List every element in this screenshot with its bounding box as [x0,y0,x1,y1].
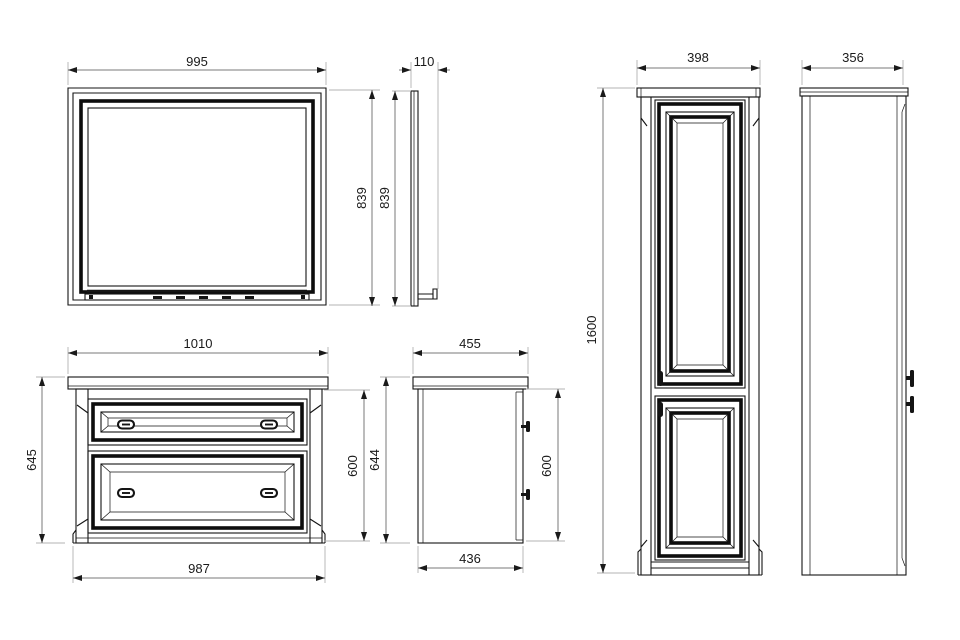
vanity-drawer-bottom [88,451,307,533]
door-panel-mitres [666,112,734,376]
mirror-glass-edge [88,108,306,286]
dimension-vanity-width-bottom: 987 [73,546,325,583]
door-panel-moulding [671,413,729,543]
handle-cap [910,370,914,387]
technical-drawing-canvas: 995 110 839 839 [0,0,960,640]
door-handle [658,371,663,386]
cabinet-door-upper [655,100,745,388]
vanity-side-view: 455 644 600 436 [367,336,565,573]
vanity-countertop [68,377,328,389]
dim-label-vanity-side-body-height: 600 [539,455,554,477]
mirror-shelf [85,294,309,300]
furniture-dimension-drawing: 995 110 839 839 [0,0,960,640]
drawer-handle-profile [521,421,530,432]
dimension-cabinet-depth: 356 [802,50,903,85]
dim-label-mirror-height-inner: 839 [377,187,392,209]
dim-label-vanity-side-height: 644 [367,449,382,471]
drawer-handle [261,421,277,429]
handle-cap [526,489,530,500]
vanity-side-panel-lines [423,389,523,543]
cabinet-bottom-rails [651,562,749,568]
door-slab [655,396,745,560]
dimension-vanity-side-height: 644 [367,377,410,543]
extension-lines [36,377,65,543]
cabinet-side-panel-lines [810,96,905,575]
dimension-mirror-width: 995 [68,54,326,85]
cabinet-cornice-ends [641,88,756,97]
handle-stem [906,376,910,380]
dim-label-mirror-height-outer: 839 [354,187,369,209]
dim-label-vanity-height: 645 [24,449,39,471]
dim-label-cabinet-height: 1600 [584,316,599,345]
dim-label-mirror-width: 995 [186,54,208,69]
dimension-cabinet-width: 398 [637,50,760,85]
dimension-vanity-side-body-height: 600 [526,389,565,541]
extension-lines [380,377,410,543]
drawer-handle [118,421,134,429]
handle-cap [910,396,914,413]
vanity-side-body [418,389,523,543]
mirror-shelf-brackets [89,295,305,299]
dimension-vanity-height: 645 [24,377,65,543]
cabinet-cornice [637,88,760,97]
tall-cabinet-side-view: 356 [800,50,914,575]
mirror-side-shelf [418,289,437,299]
dim-label-vanity-depth-top: 455 [459,336,481,351]
door-handle-profile [906,396,914,413]
mirror-frame-moulding [81,101,313,292]
dimension-mirror-height-outer: 839 [354,90,372,306]
dimension-vanity-depth-bottom: 436 [418,546,523,573]
door-slab [655,100,745,388]
cabinet-door-lower [655,396,745,560]
drawer-handle-profile [521,489,530,500]
drawer-handle [118,489,134,497]
vanity-side-countertop [413,377,528,389]
dim-label-cabinet-width: 398 [687,50,709,65]
dimension-mirror-depth: 110 [399,54,450,289]
handle-cap [526,421,530,432]
dim-label-vanity-depth-bottom: 436 [459,551,481,566]
dim-label-cabinet-depth: 356 [842,50,864,65]
dimension-vanity-body-height: 600 [324,390,370,541]
tall-cabinet-front-view: 398 1600 [584,50,762,575]
extension-lines [68,347,328,374]
dimension-vanity-width-top: 1010 [68,336,328,374]
dim-label-vanity-width-bottom: 987 [188,561,210,576]
handle-stem [906,402,910,406]
dim-label-vanity-body-height: 600 [345,455,360,477]
cabinet-side-body [802,96,906,575]
vanity-front-view: 1010 645 600 987 [24,336,370,583]
handle-stem [521,493,526,496]
vanity-feet [73,530,325,543]
handle-stem [521,425,526,428]
dim-label-mirror-depth: 110 [414,54,435,69]
door-panel-edge [666,408,734,548]
dimension-cabinet-height: 1600 [584,88,635,573]
extension-lines [411,62,438,289]
mirror-front-view: 995 [68,54,380,305]
dimension-vanity-depth-top: 455 [413,336,528,374]
mirror-side-view: 110 839 839 [354,54,450,306]
dimension-mirror-height-inner: 839 [377,91,411,306]
mirror-frame-outer [68,88,326,305]
drawer-handle [261,489,277,497]
dim-label-vanity-width-top: 1010 [184,336,213,351]
extension-lines [413,347,528,374]
vanity-drawer-top [88,399,307,445]
mirror-side-panel [411,91,418,306]
door-panel-moulding [671,117,729,371]
door-panel-edge [666,112,734,376]
door-handle [658,402,663,417]
door-handle-profile [906,370,914,387]
door-panel-mitres [666,408,734,548]
